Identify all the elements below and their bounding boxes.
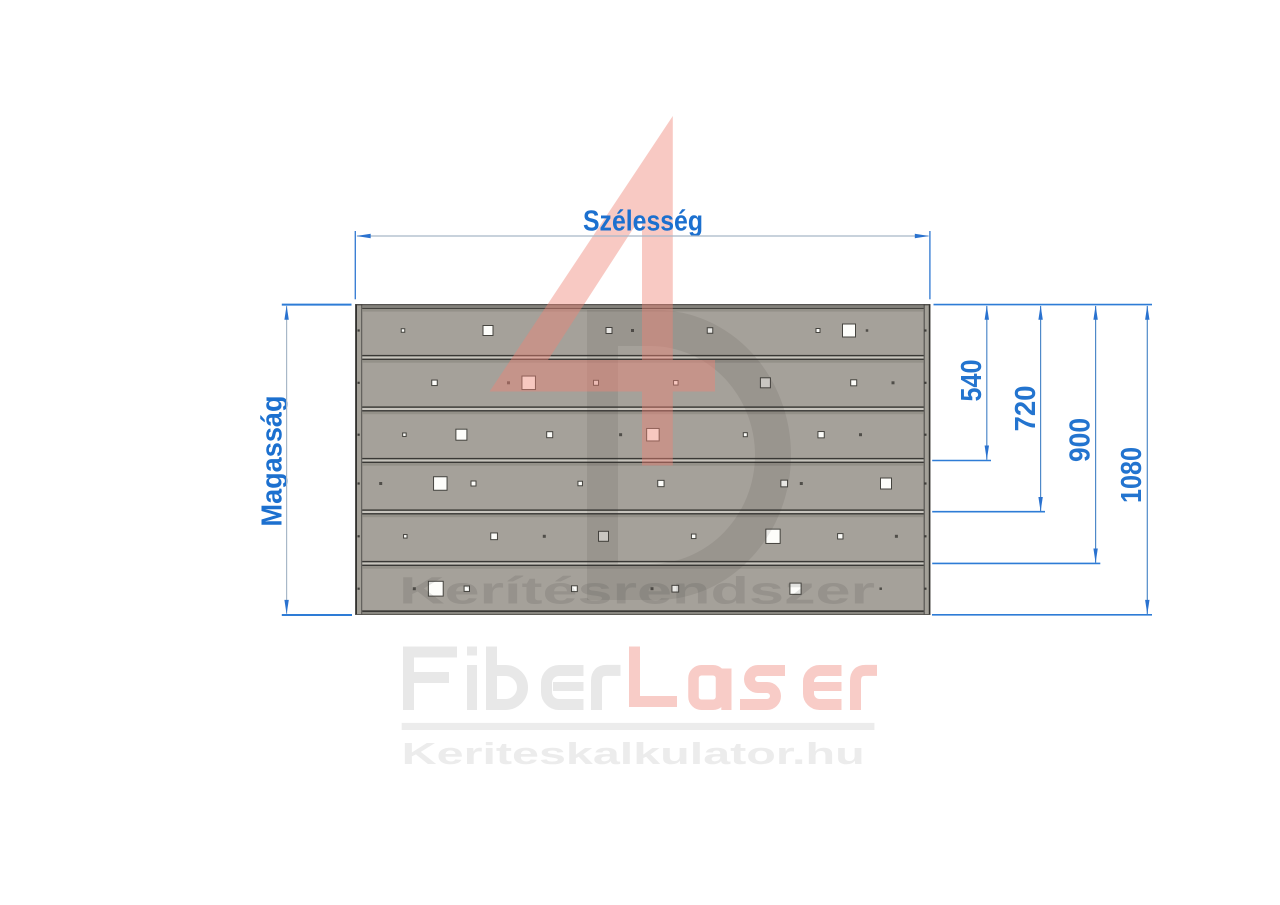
svg-text:Szélesség: Szélesség: [583, 206, 703, 238]
svg-text:1080: 1080: [1116, 447, 1148, 503]
svg-text:Keriteskalkulator.hu: Keriteskalkulator.hu: [402, 736, 865, 771]
svg-text:720: 720: [1010, 386, 1042, 432]
svg-text:540: 540: [956, 360, 988, 402]
svg-text:900: 900: [1065, 418, 1097, 462]
svg-text:Magasság: Magasság: [257, 396, 289, 527]
svg-text:Kerítésrendszer: Kerítésrendszer: [399, 571, 875, 613]
